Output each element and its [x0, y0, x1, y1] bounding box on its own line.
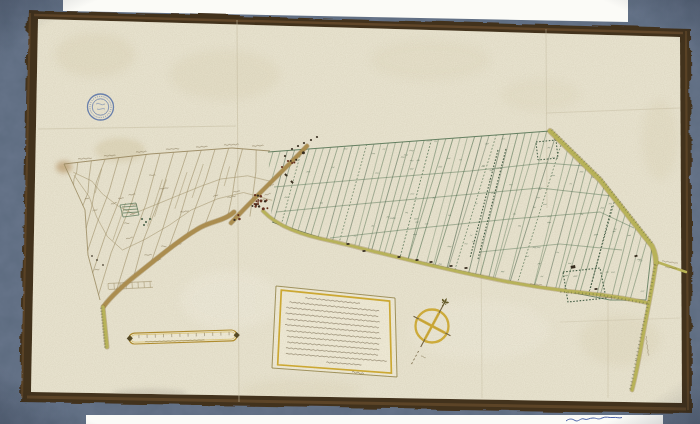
scanned-map-photo	[0, 0, 700, 424]
photo-vignette	[0, 0, 700, 424]
map-image	[0, 0, 700, 424]
